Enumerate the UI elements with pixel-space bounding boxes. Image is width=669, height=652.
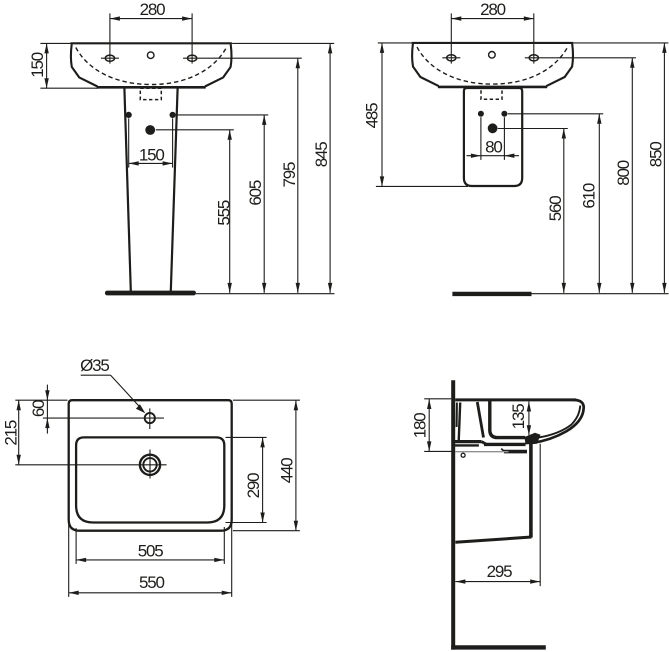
svg-text:280: 280 [140, 0, 166, 19]
svg-text:610: 610 [580, 183, 599, 209]
svg-text:150: 150 [139, 146, 165, 165]
svg-text:180: 180 [411, 413, 430, 439]
svg-text:505: 505 [138, 542, 164, 561]
svg-text:215: 215 [1, 420, 20, 446]
svg-text:135: 135 [509, 404, 528, 430]
svg-text:485: 485 [363, 103, 382, 129]
svg-text:80: 80 [485, 137, 502, 156]
svg-text:845: 845 [312, 142, 331, 168]
svg-text:60: 60 [29, 400, 48, 417]
svg-text:555: 555 [214, 200, 233, 226]
svg-text:295: 295 [487, 562, 513, 581]
svg-text:280: 280 [480, 0, 506, 19]
svg-text:550: 550 [139, 573, 165, 592]
svg-text:150: 150 [28, 52, 47, 78]
svg-text:440: 440 [278, 458, 297, 484]
svg-text:800: 800 [614, 160, 633, 186]
svg-text:290: 290 [244, 473, 263, 499]
svg-text:560: 560 [546, 196, 565, 222]
svg-text:Ø35: Ø35 [80, 356, 109, 375]
svg-text:605: 605 [246, 180, 265, 206]
svg-text:795: 795 [280, 162, 299, 188]
svg-text:850: 850 [646, 142, 665, 168]
